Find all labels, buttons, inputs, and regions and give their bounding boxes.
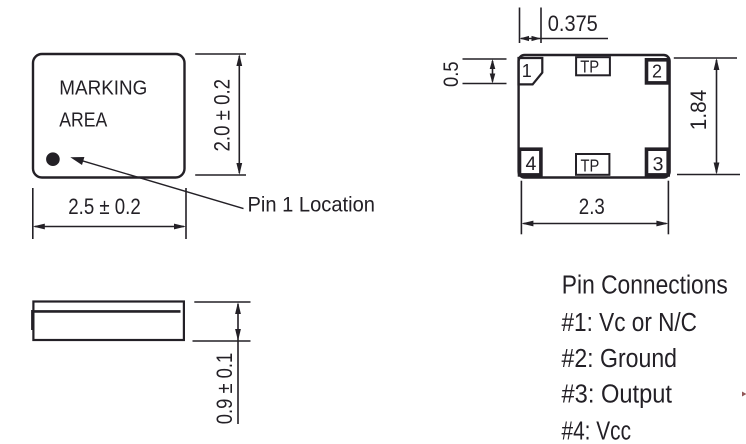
svg-text:0.5: 0.5 [440, 61, 463, 87]
svg-text:#3: Output: #3: Output [562, 381, 673, 409]
svg-text:Pin 1 Location: Pin 1 Location [248, 194, 376, 217]
svg-text:#4: Vcc: #4: Vcc [562, 418, 632, 444]
svg-text:2.3: 2.3 [579, 194, 605, 219]
svg-text:AREA: AREA [59, 108, 107, 131]
svg-text:0.375: 0.375 [548, 11, 598, 36]
svg-text:#2: Ground: #2: Ground [562, 345, 678, 373]
svg-text:1: 1 [522, 61, 532, 81]
svg-text:2.5 ± 0.2: 2.5 ± 0.2 [68, 194, 141, 219]
svg-text:#1: Vc or N/C: #1: Vc or N/C [562, 309, 698, 337]
svg-text:2.0 ± 0.2: 2.0 ± 0.2 [210, 79, 235, 152]
svg-text:TP: TP [580, 56, 599, 76]
svg-text:3: 3 [653, 154, 664, 176]
svg-text:TP: TP [581, 155, 600, 175]
svg-text:Pin Connections: Pin Connections [562, 272, 728, 300]
svg-text:2: 2 [652, 62, 662, 82]
svg-text:1.84: 1.84 [686, 90, 711, 131]
svg-text:4: 4 [525, 153, 536, 175]
svg-text:MARKING: MARKING [59, 77, 147, 100]
svg-text:0.9 ± 0.1: 0.9 ± 0.1 [212, 353, 237, 425]
